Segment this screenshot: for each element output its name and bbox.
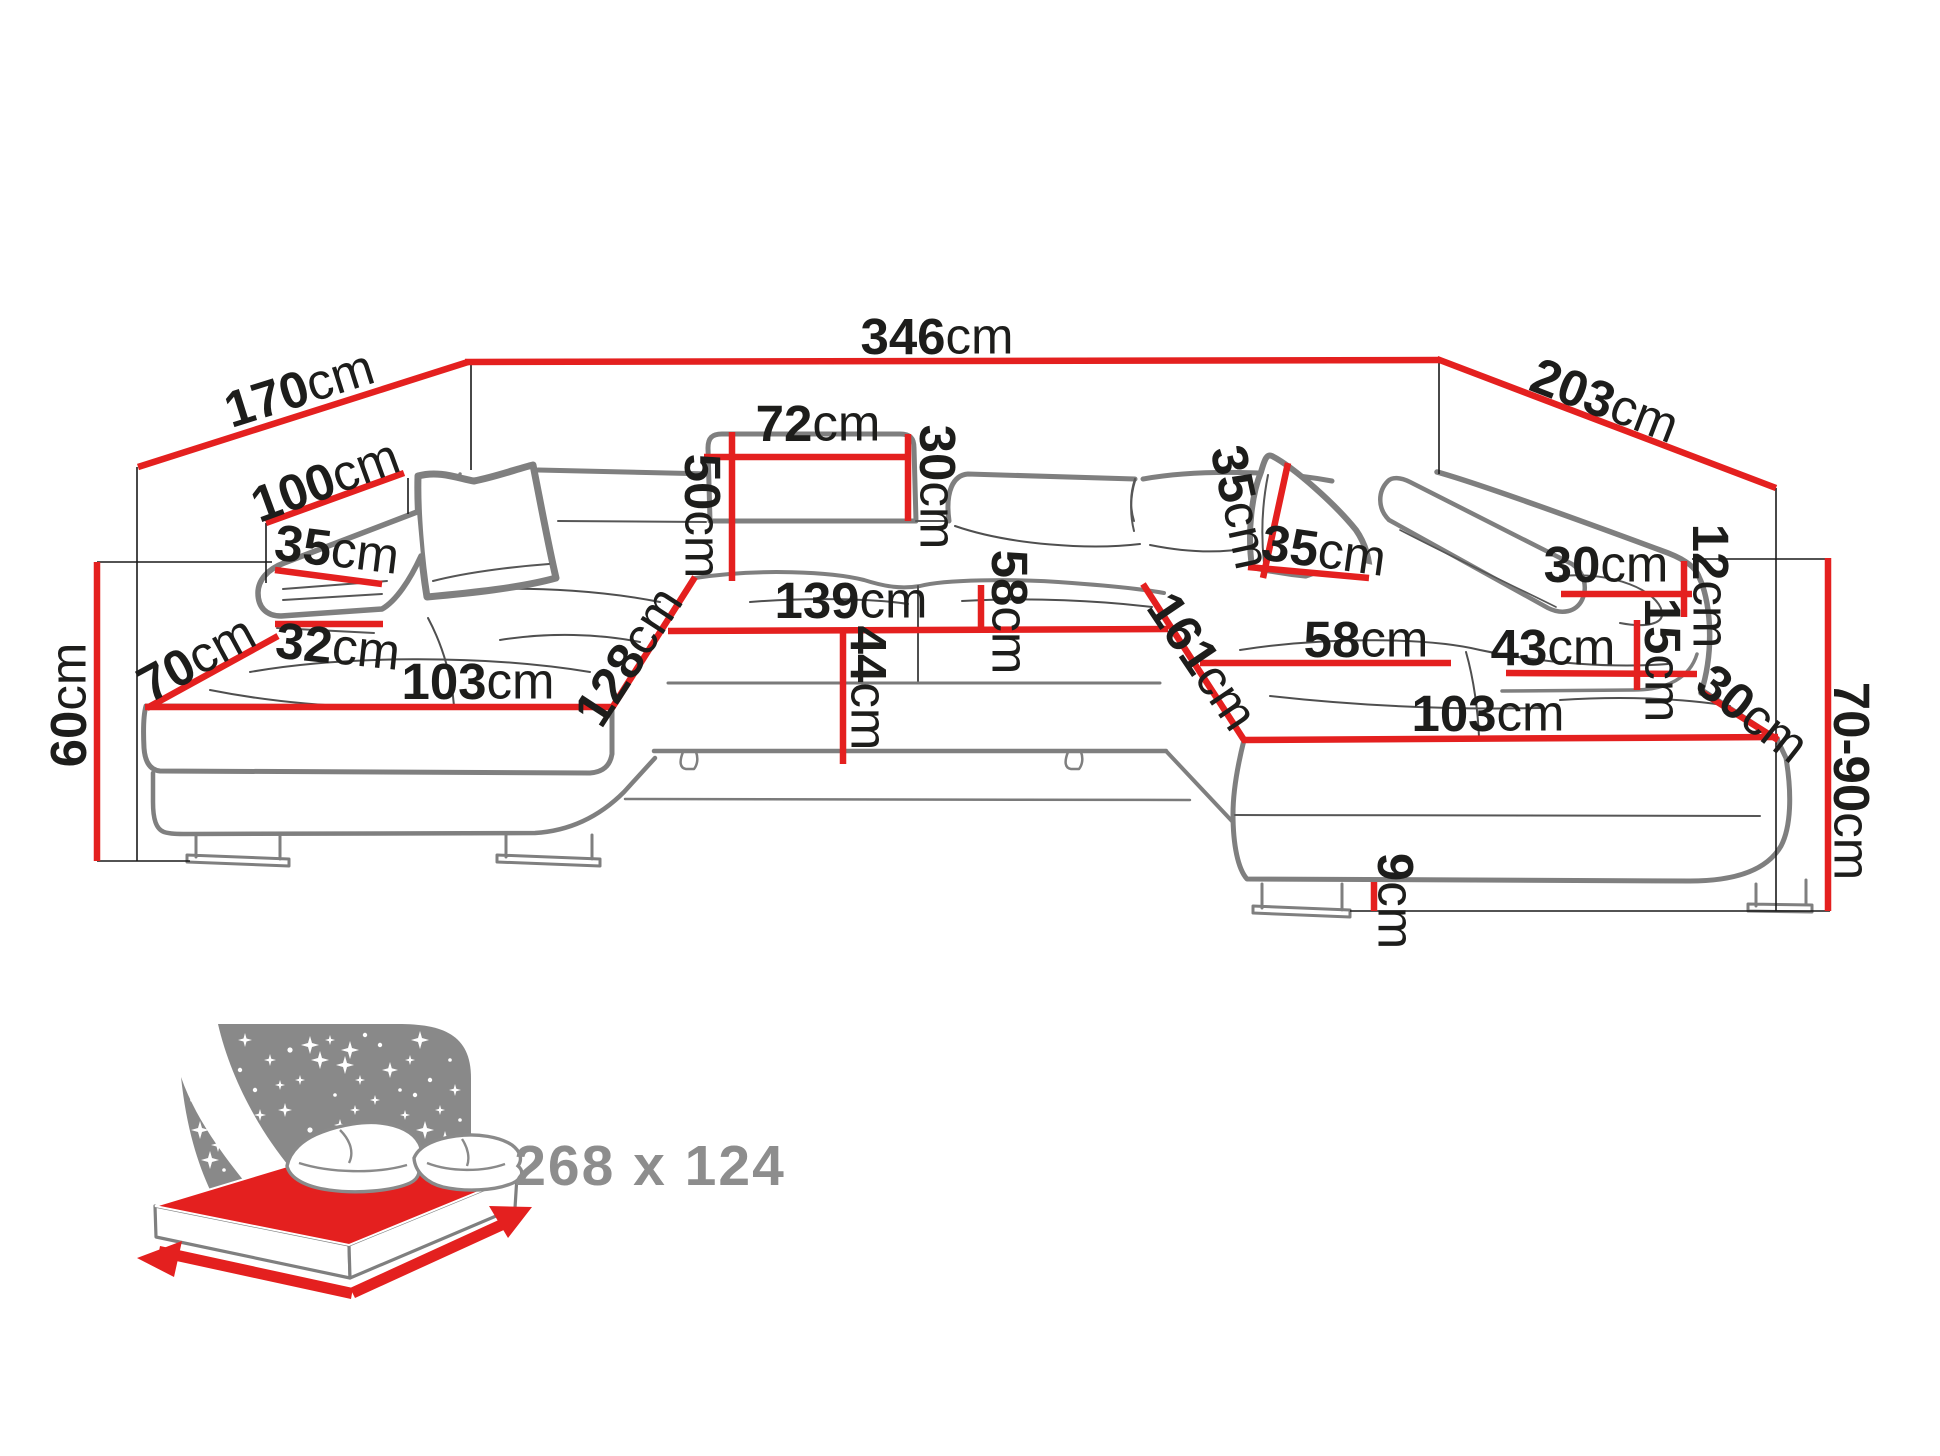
svg-text:58cm: 58cm xyxy=(982,550,1039,675)
svg-text:30cm: 30cm xyxy=(1544,536,1669,593)
svg-text:58cm: 58cm xyxy=(1304,611,1429,668)
svg-text:139cm: 139cm xyxy=(774,572,927,629)
svg-text:70-90cm: 70-90cm xyxy=(1824,682,1881,880)
svg-text:346cm: 346cm xyxy=(860,308,1013,365)
svg-text:44cm: 44cm xyxy=(841,626,898,751)
svg-text:43cm: 43cm xyxy=(1491,619,1616,676)
svg-text:103cm: 103cm xyxy=(401,653,554,710)
svg-text:9cm: 9cm xyxy=(1368,853,1425,949)
svg-text:30cm: 30cm xyxy=(910,425,967,550)
svg-text:50cm: 50cm xyxy=(675,454,732,579)
svg-text:15cm: 15cm xyxy=(1635,598,1692,723)
svg-text:72cm: 72cm xyxy=(756,395,881,452)
svg-text:103cm: 103cm xyxy=(1411,685,1564,742)
svg-text:60cm: 60cm xyxy=(40,643,97,768)
svg-text:268 x 124: 268 x 124 xyxy=(514,1134,786,1198)
